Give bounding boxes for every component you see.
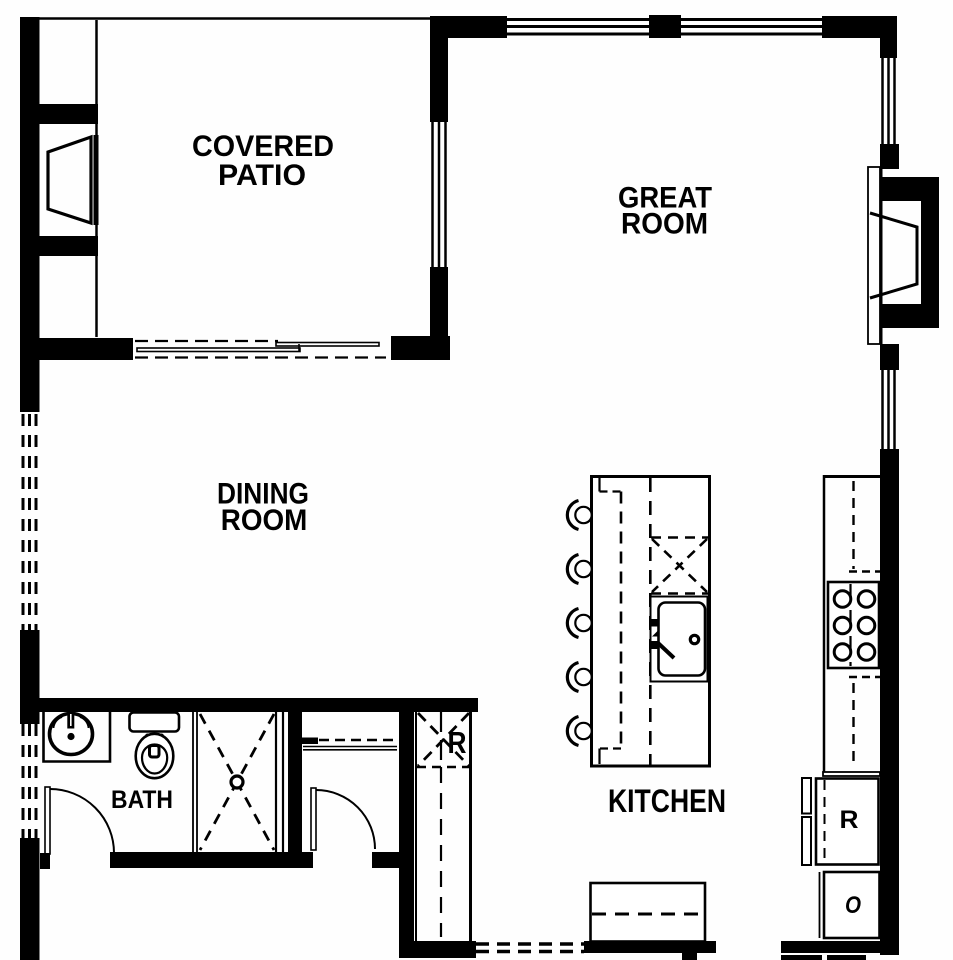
svg-text:ROOM: ROOM (621, 208, 708, 241)
svg-text:PATIO: PATIO (218, 159, 306, 192)
svg-text:BATH: BATH (111, 786, 173, 814)
svg-text:KITCHEN: KITCHEN (608, 783, 726, 819)
svg-text:R: R (840, 806, 859, 834)
svg-text:ROOM: ROOM (221, 504, 308, 537)
svg-text:O: O (845, 892, 861, 919)
svg-text:R: R (448, 725, 467, 760)
